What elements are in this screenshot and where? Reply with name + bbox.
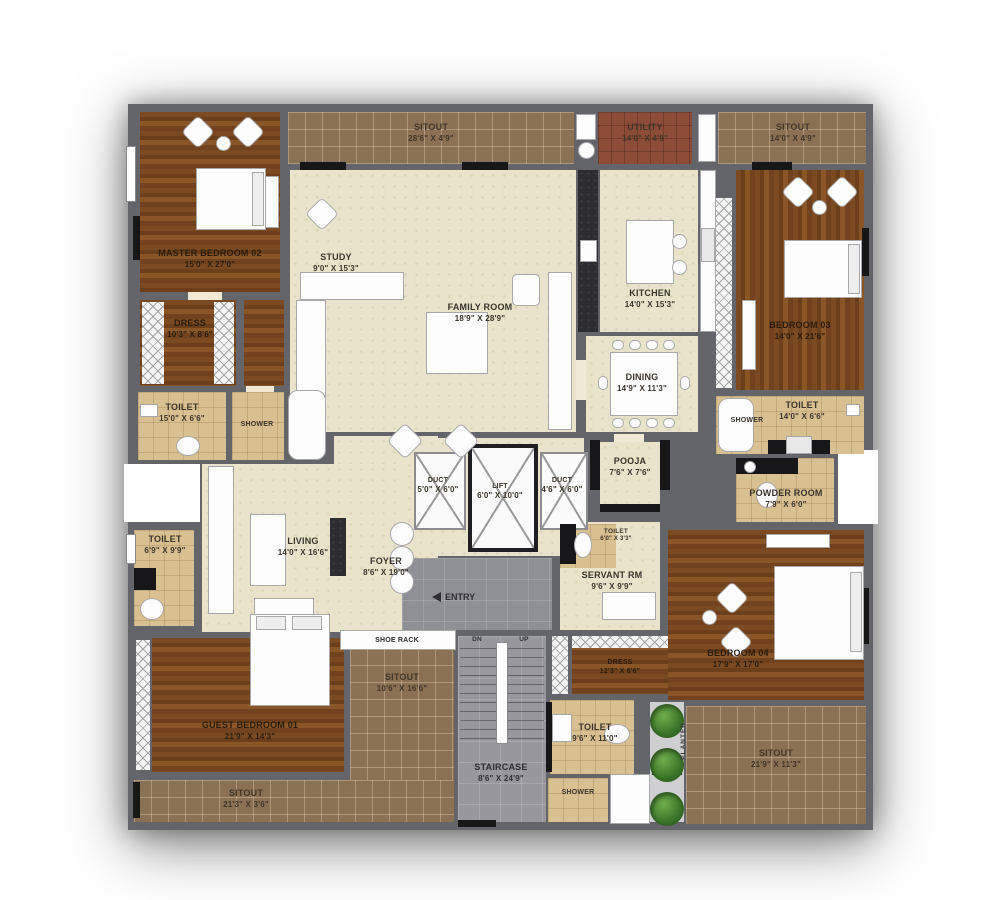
window-lintel: [133, 216, 140, 260]
console: [766, 534, 830, 548]
room-label-duct-left: DUCT5'0" X 6'0": [417, 476, 458, 495]
entry-arrow-icon: [432, 592, 441, 602]
room-label-living: LIVING14'0" X 16'6": [278, 536, 328, 558]
sitout-bottom-left-floor: [134, 780, 454, 822]
stairs-up-label: UP: [519, 636, 528, 644]
room-label-toilet-living: TOILET6'9" X 9'9": [144, 534, 185, 556]
room-label-utility: UTILITY14'0" X 4'9": [622, 122, 668, 144]
dining-chair: [612, 340, 624, 350]
wardrobe-dress-left: [142, 302, 164, 384]
room-label-duct-right: DUCT4'6" X 6'0": [541, 476, 582, 495]
sink: [846, 404, 860, 416]
master-bed-headboard: [252, 172, 264, 226]
window-master: [126, 146, 136, 202]
stool: [672, 260, 687, 275]
side-table: [812, 200, 827, 215]
wardrobe-bedroom-03: [716, 198, 732, 388]
entry-marker: ENTRY: [432, 592, 475, 602]
room-label-servant-room: SERVANT RM9'6" X 9'9": [582, 570, 643, 592]
side-table: [702, 610, 717, 625]
room-label-sitout-top: SITOUT28'6" X 4'9": [408, 122, 454, 144]
room-label-toilet-master: TOILET15'0" X 6'6": [159, 402, 205, 424]
dining-chair: [612, 418, 624, 428]
window-lintel: [862, 228, 869, 276]
master-dresser: [265, 176, 279, 228]
room-label-powder-room: POWDER ROOM7'9" X 6'0": [749, 488, 822, 510]
washing-machine: [578, 142, 595, 159]
kitchen-sink: [701, 228, 715, 262]
room-label-guest-bedroom: GUEST BEDROOM 0121'9" X 14'3": [202, 720, 298, 742]
dining-chair: [598, 376, 608, 390]
shower-bottom-floor: [548, 778, 608, 822]
room-label-planter: PLANTER: [680, 722, 687, 760]
shoe-rack-label: SHOE RACK: [375, 636, 419, 645]
bedroom-03-dresser: [742, 300, 756, 370]
kitchen-island: [626, 220, 674, 284]
wardrobe-dress-bottom-left: [552, 636, 568, 694]
plant-icon: [650, 704, 684, 738]
stool: [672, 234, 687, 249]
room-label-study: STUDY9'0" X 15'3": [313, 252, 359, 274]
plant-icon: [650, 792, 684, 826]
wardrobe-guest: [136, 640, 150, 770]
door-family-dining: [576, 360, 586, 400]
floor-plan: SITOUT28'6" X 4'9" UTILITY14'0" X 4'9" S…: [0, 0, 1000, 900]
dining-chair: [629, 340, 641, 350]
plan-notch-left: [124, 464, 200, 522]
sink: [140, 404, 158, 417]
corner-cabinet: [698, 114, 716, 162]
side-table: [216, 136, 231, 151]
plan-notch-right: [838, 450, 878, 524]
dining-chair: [680, 376, 690, 390]
tv-unit: [330, 518, 346, 576]
window-lintel: [458, 820, 496, 827]
stairs-dn-label: DN: [472, 636, 482, 644]
room-label-foyer: FOYER8'6" X 19'0": [363, 556, 409, 578]
powder-sink: [744, 461, 756, 473]
dining-chair: [663, 418, 675, 428]
dining-chair: [646, 418, 658, 428]
room-label-kitchen: KITCHEN14'0" X 15'3": [625, 288, 675, 310]
room-label-family-room: FAMILY ROOM18'9" X 28'9": [448, 302, 513, 324]
dress-corridor-floor: [244, 300, 284, 386]
room-label-staircase: STAIRCASE8'6" X 24'9": [474, 762, 527, 784]
dining-chair: [663, 340, 675, 350]
window-lintel: [752, 162, 792, 170]
shower-tray: [610, 774, 650, 824]
door-master-dress: [188, 292, 222, 300]
plant-icon: [650, 748, 684, 782]
room-label-master-bedroom: MASTER BEDROOM 0215'0" X 27'0": [158, 248, 261, 270]
entry-floor: [402, 558, 552, 630]
toilet-wc: [176, 436, 200, 456]
bed-headboard: [850, 572, 862, 652]
pillow: [292, 616, 322, 630]
dining-chair: [646, 340, 658, 350]
room-label-lift: LIFT6'0" X 10'0": [477, 482, 523, 501]
window-lintel: [462, 162, 508, 170]
living-shelf: [208, 466, 234, 614]
room-label-dress-master: DRESS10'3" X 8'6": [167, 318, 213, 340]
family-shelf: [548, 272, 572, 430]
family-sofa-top: [300, 272, 404, 300]
toilet-wc: [140, 598, 164, 620]
pooja-sill: [600, 504, 660, 512]
pooja-column-right: [660, 440, 670, 490]
door-dress-bath: [246, 386, 274, 392]
bed-headboard: [848, 244, 860, 294]
room-label-dress-bottom: DRESS12'3" X 6'6": [600, 658, 640, 676]
sink: [552, 714, 572, 742]
window-lintel: [300, 162, 346, 170]
stair-runner: [496, 642, 508, 744]
room-label-shower-bottom: SHOWER: [562, 788, 595, 797]
room-label-shower-right: SHOWER: [731, 416, 764, 425]
room-label-sitout-bottom-right: SITOUT21'9" X 11'3": [751, 748, 801, 770]
sink: [786, 436, 812, 454]
room-label-sitout-top-right: SITOUT14'0" X 4'9": [770, 122, 816, 144]
room-label-dining: DINING14'9" X 11'3": [617, 372, 667, 394]
room-label-toilet-servant: TOILET6'0" X 3'3": [600, 528, 631, 544]
room-label-shower-master: SHOWER: [241, 420, 274, 429]
armchair: [512, 274, 540, 306]
room-label-pooja: POOJA7'6" X 7'6": [609, 456, 650, 478]
toilet-living-counter: [134, 568, 156, 590]
foyer-step: [390, 522, 414, 546]
utility-sink: [576, 114, 596, 140]
room-label-sitout-mid: SITOUT10'6" X 16'6": [377, 672, 427, 694]
wardrobe-dress-bottom-top: [572, 636, 668, 648]
servant-bed: [602, 592, 656, 620]
pillow: [256, 616, 286, 630]
window-lintel: [133, 782, 140, 818]
stove: [580, 240, 597, 262]
door-pooja: [614, 434, 644, 442]
toilet-wc: [574, 532, 592, 558]
wardrobe-dress-right: [214, 302, 234, 384]
room-label-bedroom-03: BEDROOM 0314'0" X 21'6": [769, 320, 831, 342]
dining-chair: [629, 418, 641, 428]
window-toilet-living: [126, 534, 136, 564]
room-label-toilet-right: TOILET14'0" X 6'6": [779, 400, 825, 422]
room-label-toilet-bottom: TOILET9'6" X 11'0": [572, 722, 617, 744]
room-label-bedroom-04: BEDROOM 0417'9" X 17'0": [707, 648, 769, 670]
sitout-mid-floor: [350, 648, 454, 780]
bathtub: [288, 390, 326, 460]
room-label-sitout-bottom-left: SITOUT21'3" X 3'6": [223, 788, 269, 810]
pooja-column-left: [590, 440, 600, 490]
